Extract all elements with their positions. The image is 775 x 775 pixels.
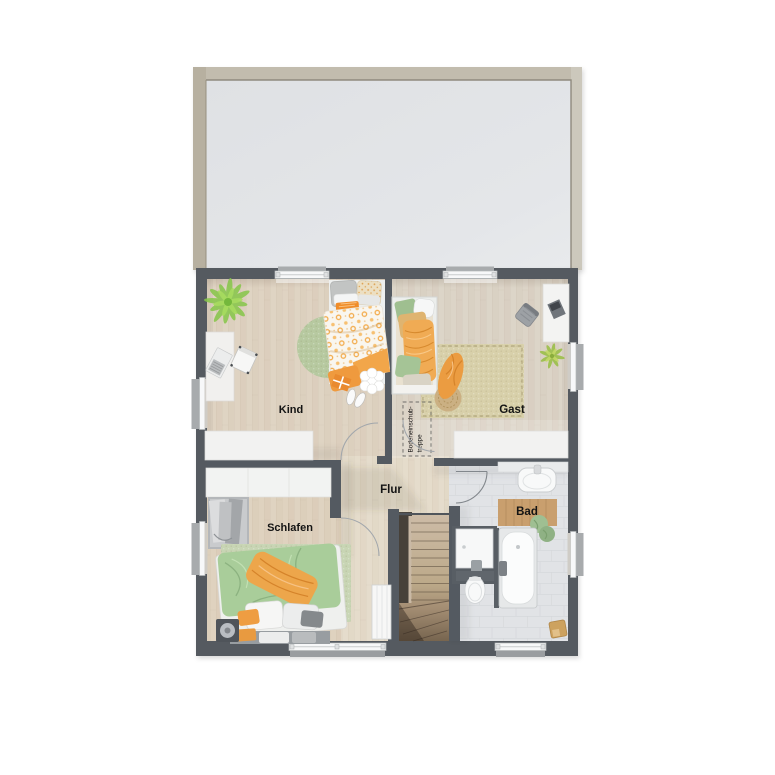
svg-text:Schlafen: Schlafen	[267, 522, 313, 534]
svg-text:Kind: Kind	[279, 404, 303, 416]
svg-text:Bodeneinschub-: Bodeneinschub-	[408, 406, 415, 452]
svg-text:Bad: Bad	[516, 506, 538, 518]
svg-text:Gast: Gast	[499, 404, 525, 416]
svg-text:Flur: Flur	[380, 484, 402, 496]
